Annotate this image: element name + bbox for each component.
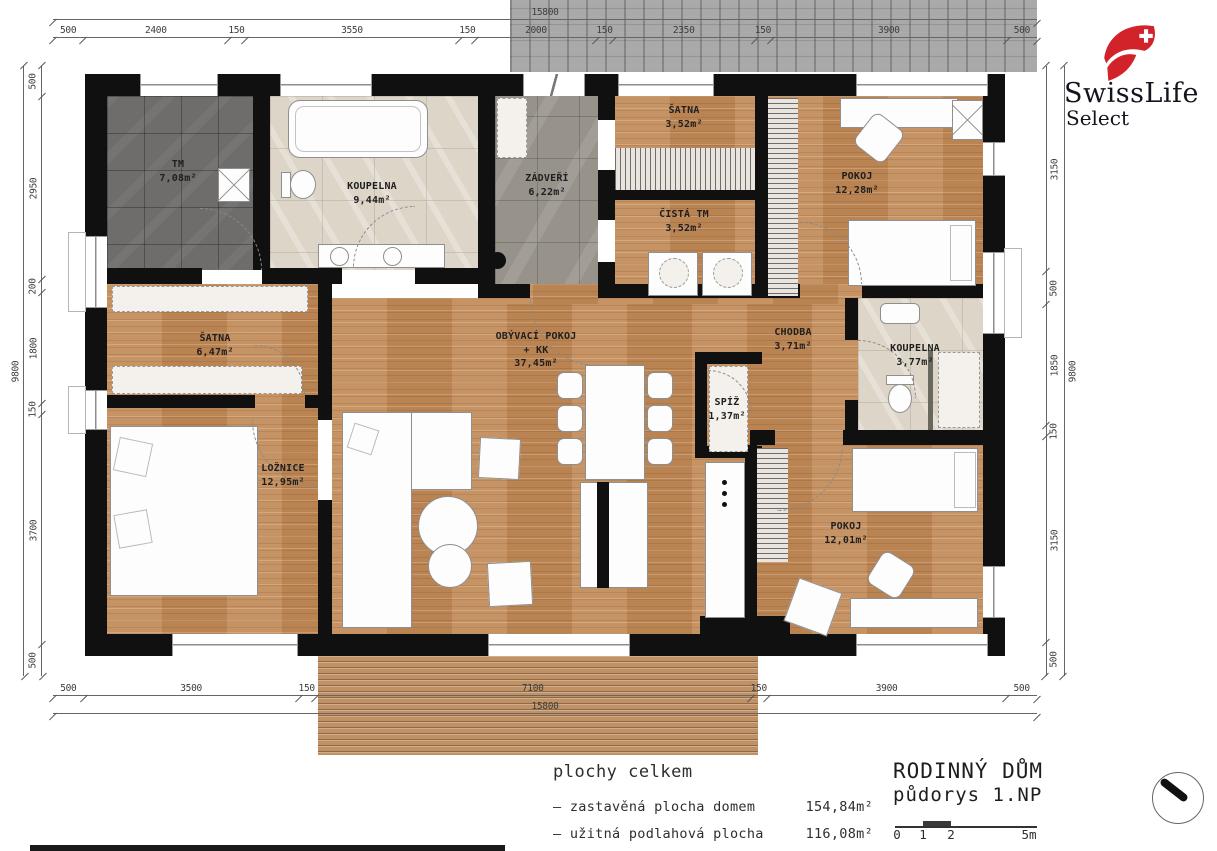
dim-segment: 500 <box>26 645 42 676</box>
legend-label: – užitná podlahová plocha <box>553 826 764 842</box>
washing-machine <box>218 168 250 202</box>
desk <box>840 98 958 128</box>
side-table <box>487 561 533 607</box>
dim-segment: 500 <box>1007 22 1037 38</box>
dim-segment: 3550 <box>245 22 460 38</box>
window <box>983 252 1005 334</box>
entrance-door <box>523 74 585 96</box>
wall <box>107 395 255 408</box>
wall-outer-left <box>85 74 107 656</box>
legend-row: – zastavěná plocha domem 154,84m² <box>553 799 873 815</box>
dim-segment: 2400 <box>83 22 228 38</box>
dim-segment: 150 <box>596 22 612 38</box>
pillow <box>113 437 153 477</box>
wall <box>415 268 478 284</box>
dim-segment: 500 <box>1046 643 1062 676</box>
room-label-koupelna: KOUPELNA9,44m² <box>347 180 397 207</box>
dim-value: 500 <box>1049 280 1060 296</box>
wall <box>843 430 983 445</box>
legend-heading: plochy celkem <box>553 762 873 782</box>
dim-segment: 150 <box>26 404 42 415</box>
dim-value: 3150 <box>1049 158 1060 180</box>
dim-segment: 9800 <box>8 66 24 676</box>
brand-name: SwissLife <box>1064 78 1199 109</box>
room-label-spiz: SPÍŽ1,37m² <box>708 396 745 423</box>
dim-value: 500 <box>60 25 76 36</box>
cabinet <box>952 100 983 140</box>
cropped-scale-bar <box>30 845 505 851</box>
legend-value: 116,08m² <box>806 826 873 842</box>
dim-value: 2400 <box>145 25 167 36</box>
dim-value: 3150 <box>1049 529 1060 551</box>
wardrobe-band <box>615 148 755 190</box>
dim-segment: 500 <box>53 22 83 38</box>
room-label-cista-tm: ČISTÁ TM3,52m² <box>659 208 709 235</box>
wall <box>305 395 318 408</box>
dim-row-bottom: 500350015071001503900500 <box>53 680 1037 696</box>
kitchen-island <box>580 482 648 588</box>
dim-value: 150 <box>459 25 475 36</box>
pouf <box>428 544 472 588</box>
wall <box>598 170 615 220</box>
dim-value: 150 <box>755 25 771 36</box>
dim-col-right: 315050018501503150500 <box>1046 66 1062 676</box>
window-sill <box>68 232 86 312</box>
drawing-title: půdorys 1.NP <box>893 784 1043 806</box>
room-label-satna-top: ŠATNA3,52m² <box>665 104 702 131</box>
pillow <box>950 225 972 281</box>
dim-segment: 2000 <box>475 22 596 38</box>
column <box>489 252 506 269</box>
wall <box>700 616 790 656</box>
dim-segment: 150 <box>751 680 767 696</box>
burner-dot <box>722 480 727 485</box>
wall <box>478 284 530 298</box>
appliance-drum <box>659 258 689 288</box>
dim-value: 150 <box>751 683 767 694</box>
closet-row <box>112 286 308 312</box>
dim-segment: 150 <box>299 680 315 696</box>
dim-value: 150 <box>228 25 244 36</box>
north-arrow <box>1152 772 1204 824</box>
kitchen-island-counter <box>597 482 609 588</box>
dim-segment: 3150 <box>1046 66 1062 272</box>
dim-value: 500 <box>1049 652 1060 668</box>
toilet <box>290 170 316 199</box>
wall <box>750 430 775 445</box>
window-sill <box>68 386 86 434</box>
dim-value: 500 <box>1014 683 1030 694</box>
wall <box>695 352 707 458</box>
chair <box>647 438 673 465</box>
dim-segment: 3900 <box>767 680 1006 696</box>
wall <box>845 400 858 430</box>
window <box>85 236 107 308</box>
dim-value: 1800 <box>28 338 39 360</box>
legend-value: 154,84m² <box>806 799 873 815</box>
north-needle <box>1159 777 1189 803</box>
legend-label: – zastavěná plocha domem <box>553 799 755 815</box>
dim-value: 9800 <box>1067 360 1078 382</box>
window <box>172 634 298 656</box>
wall <box>755 96 768 298</box>
window <box>856 74 988 96</box>
chair <box>647 372 673 399</box>
project-title: RODINNÝ DŮM <box>893 758 1043 784</box>
dim-segment: 500 <box>26 66 42 97</box>
dim-segment: 3700 <box>26 415 42 645</box>
dim-segment: 3150 <box>1046 437 1062 643</box>
sink <box>880 303 920 324</box>
scale-bar: 0 1 2 5m <box>895 818 1037 848</box>
wall <box>107 268 202 284</box>
dim-row-bottom-total: 15800 <box>53 698 1037 714</box>
title-block: RODINNÝ DŮM půdorys 1.NP <box>893 758 1043 806</box>
dim-value: 500 <box>60 683 76 694</box>
chair <box>557 372 583 399</box>
window <box>280 74 372 96</box>
floor-plan-sheet: TM7,08m² KOUPELNA9,44m² ZÁDVEŘÍ6,22m² ŠA… <box>0 0 1217 851</box>
dim-value: 3700 <box>28 519 39 541</box>
room-label-zadveri: ZÁDVEŘÍ6,22m² <box>525 172 569 199</box>
dim-value: 3900 <box>878 25 900 36</box>
window <box>856 634 988 656</box>
dim-segment: 500 <box>53 680 84 696</box>
kitchen-counter <box>705 462 745 618</box>
dining-table <box>585 365 645 480</box>
dim-segment: 3900 <box>771 22 1007 38</box>
window-sill <box>1004 248 1022 338</box>
chair <box>647 405 673 432</box>
room-label-pokoj-tr: POKOJ12,28m² <box>835 170 879 197</box>
chair <box>557 438 583 465</box>
window <box>983 566 1005 618</box>
dim-value: 15800 <box>531 7 558 18</box>
appliance-drum <box>713 258 743 288</box>
dim-segment: 200 <box>26 280 42 292</box>
dim-segment: 3500 <box>84 680 299 696</box>
legend-row: – užitná podlahová plocha 116,08m² <box>553 826 873 842</box>
window <box>618 74 714 96</box>
wall <box>318 500 332 634</box>
room-label-loznice: LOŽNICE12,95m² <box>261 462 305 489</box>
wall <box>845 298 858 340</box>
room-label-living: OBÝVACÍ POKOJ+ KK37,45m² <box>496 330 577 371</box>
dim-row-top-total: 15800 <box>53 4 1037 20</box>
scale-tick: 2 <box>947 827 955 842</box>
dim-value: 3550 <box>341 25 363 36</box>
dim-segment: 15800 <box>53 4 1037 20</box>
burner-dot <box>722 491 727 496</box>
dim-segment: 2950 <box>26 97 42 280</box>
dim-value: 3900 <box>876 683 898 694</box>
room-label-koupelna2: KOUPELNA3,77m² <box>890 342 940 369</box>
room-label-chodba: CHODBA3,71m² <box>774 326 811 353</box>
room-label-satna-left: ŠATNA6,47m² <box>196 332 233 359</box>
terrace-slider-door <box>488 634 630 656</box>
wall <box>262 268 342 284</box>
dim-value: 500 <box>1014 25 1030 36</box>
dim-value: 150 <box>596 25 612 36</box>
swiss-cross-h <box>1139 34 1152 38</box>
desk <box>850 598 978 628</box>
wall <box>862 284 983 298</box>
dim-value: 9800 <box>10 360 21 382</box>
scale-tick: 1 <box>919 827 927 842</box>
dim-value: 2000 <box>525 25 547 36</box>
scale-tick: 0 <box>893 827 901 842</box>
scale-tick: 5m <box>1021 827 1036 842</box>
dim-segment: 1800 <box>26 293 42 405</box>
dim-segment: 1850 <box>1046 305 1062 426</box>
dim-value: 15800 <box>531 701 558 712</box>
wall <box>598 96 615 120</box>
dim-col-left-total: 9800 <box>8 66 24 676</box>
scale-bar-step <box>923 821 951 826</box>
burner-dot <box>722 502 727 507</box>
dim-segment: 150 <box>459 22 475 38</box>
window <box>983 142 1005 176</box>
dim-value: 7100 <box>522 683 544 694</box>
wardrobe-band <box>768 98 798 296</box>
dim-col-left: 500295020018001503700500 <box>26 66 42 676</box>
dim-row-top: 50024001503550150200015023501503900500 <box>53 22 1037 38</box>
entry-bench <box>497 98 527 158</box>
wall <box>598 284 615 298</box>
window <box>85 390 107 430</box>
dim-segment: 150 <box>755 22 771 38</box>
scale-bar-line <box>895 826 1037 828</box>
pillow <box>113 509 152 548</box>
room-label-pokoj-br: POKOJ12,01m² <box>824 520 868 547</box>
dim-segment: 500 <box>1006 680 1037 696</box>
chair <box>557 405 583 432</box>
dim-segment: 9800 <box>1064 66 1080 676</box>
dim-value: 3500 <box>180 683 202 694</box>
side-table <box>478 437 521 480</box>
dim-value: 2950 <box>28 178 39 200</box>
pillow <box>954 452 976 508</box>
sink <box>330 247 349 266</box>
wall <box>745 445 757 620</box>
dim-segment: 15800 <box>53 698 1037 714</box>
wall <box>318 284 332 420</box>
dim-value: 500 <box>28 652 39 668</box>
shower <box>938 352 980 428</box>
wall <box>615 190 755 200</box>
dim-value: 1850 <box>1049 355 1060 377</box>
area-legend: plochy celkem – zastavěná plocha domem 1… <box>553 762 873 842</box>
room-label-tm: TM7,08m² <box>159 158 196 185</box>
dim-segment: 150 <box>228 22 244 38</box>
dim-value: 150 <box>299 683 315 694</box>
dim-value: 2350 <box>673 25 695 36</box>
window <box>140 74 218 96</box>
dim-segment: 2350 <box>613 22 755 38</box>
bathtub-inner <box>295 106 421 152</box>
dim-value: 500 <box>28 73 39 89</box>
dim-col-right-total: 9800 <box>1064 66 1080 676</box>
dim-segment: 7100 <box>315 680 751 696</box>
